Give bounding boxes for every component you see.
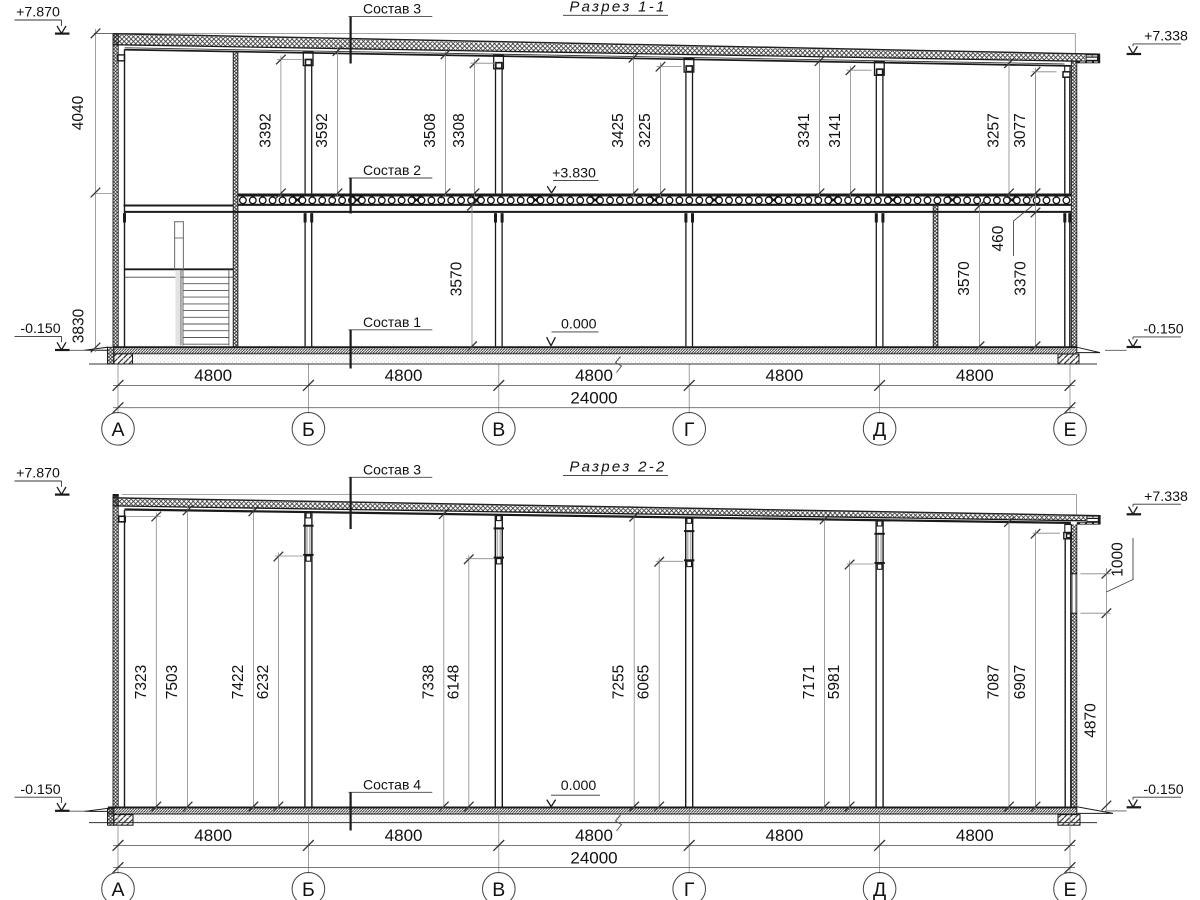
svg-text:+7.870: +7.870 bbox=[16, 5, 60, 21]
svg-text:Б: Б bbox=[302, 879, 315, 900]
svg-text:7087: 7087 bbox=[986, 665, 1003, 699]
svg-text:Г: Г bbox=[684, 879, 695, 900]
svg-text:Б: Б bbox=[302, 419, 315, 441]
svg-text:В: В bbox=[492, 879, 505, 900]
svg-text:4870: 4870 bbox=[1083, 703, 1100, 738]
svg-text:3341: 3341 bbox=[796, 113, 813, 147]
svg-text:7323: 7323 bbox=[133, 665, 150, 699]
svg-text:Состав 1: Состав 1 bbox=[363, 314, 421, 330]
svg-text:Д: Д bbox=[873, 419, 886, 441]
svg-text:Разрез 1-1: Разрез 1-1 bbox=[569, 0, 666, 15]
svg-text:-0.150: -0.150 bbox=[20, 321, 60, 337]
svg-text:Е: Е bbox=[1063, 419, 1076, 441]
svg-text:3141: 3141 bbox=[827, 113, 844, 147]
svg-text:7255: 7255 bbox=[611, 665, 628, 699]
svg-text:Состав 2: Состав 2 bbox=[363, 162, 421, 178]
svg-text:3570: 3570 bbox=[449, 261, 466, 296]
svg-text:3308: 3308 bbox=[451, 113, 468, 147]
svg-text:0.000: 0.000 bbox=[561, 778, 597, 794]
svg-text:Состав 4: Состав 4 bbox=[363, 776, 421, 792]
svg-text:А: А bbox=[111, 879, 124, 900]
svg-text:-0.150: -0.150 bbox=[20, 782, 60, 798]
svg-text:6148: 6148 bbox=[445, 665, 462, 699]
svg-text:+7.870: +7.870 bbox=[16, 466, 60, 482]
svg-text:Г: Г bbox=[684, 419, 695, 441]
svg-text:3425: 3425 bbox=[610, 113, 627, 147]
svg-text:Состав 3: Состав 3 bbox=[363, 461, 421, 477]
svg-text:Е: Е bbox=[1063, 879, 1076, 900]
svg-text:7422: 7422 bbox=[230, 665, 247, 699]
svg-text:7171: 7171 bbox=[801, 665, 818, 699]
svg-text:4800: 4800 bbox=[956, 826, 994, 845]
svg-text:3077: 3077 bbox=[1012, 113, 1029, 147]
svg-text:4800: 4800 bbox=[194, 366, 232, 385]
svg-text:А: А bbox=[111, 419, 124, 441]
svg-text:4800: 4800 bbox=[385, 826, 423, 845]
svg-text:-0.150: -0.150 bbox=[1143, 322, 1183, 338]
svg-text:460: 460 bbox=[990, 225, 1007, 251]
svg-text:3257: 3257 bbox=[986, 113, 1003, 147]
svg-text:+7.338: +7.338 bbox=[1144, 489, 1188, 505]
svg-text:+7.338: +7.338 bbox=[1144, 29, 1188, 45]
svg-text:3370: 3370 bbox=[1013, 261, 1030, 296]
svg-text:5981: 5981 bbox=[826, 665, 843, 699]
svg-text:1000: 1000 bbox=[1109, 542, 1126, 577]
svg-text:24000: 24000 bbox=[570, 389, 617, 408]
svg-text:4800: 4800 bbox=[956, 366, 994, 385]
svg-text:Д: Д bbox=[873, 879, 886, 900]
svg-text:3592: 3592 bbox=[314, 113, 331, 147]
svg-text:3830: 3830 bbox=[71, 308, 88, 343]
svg-text:Разрез 2-2: Разрез 2-2 bbox=[569, 458, 666, 475]
svg-text:0.000: 0.000 bbox=[561, 317, 597, 333]
svg-text:6065: 6065 bbox=[636, 665, 653, 699]
svg-text:4800: 4800 bbox=[765, 366, 803, 385]
svg-text:6232: 6232 bbox=[255, 665, 272, 699]
svg-text:В: В bbox=[492, 419, 505, 441]
svg-text:3225: 3225 bbox=[637, 113, 654, 147]
svg-text:+3.830: +3.830 bbox=[552, 165, 596, 181]
svg-text:-0.150: -0.150 bbox=[1143, 782, 1183, 798]
svg-text:4040: 4040 bbox=[70, 95, 87, 130]
svg-text:3508: 3508 bbox=[422, 113, 439, 147]
svg-text:4800: 4800 bbox=[575, 366, 613, 385]
svg-text:3570: 3570 bbox=[956, 261, 973, 296]
svg-text:4800: 4800 bbox=[575, 826, 613, 845]
svg-text:4800: 4800 bbox=[765, 826, 803, 845]
svg-text:6907: 6907 bbox=[1012, 665, 1029, 699]
svg-text:4800: 4800 bbox=[385, 366, 423, 385]
svg-text:4800: 4800 bbox=[194, 826, 232, 845]
svg-text:Состав 3: Состав 3 bbox=[363, 1, 421, 17]
svg-text:7338: 7338 bbox=[420, 665, 437, 699]
svg-text:7503: 7503 bbox=[164, 665, 181, 699]
svg-text:24000: 24000 bbox=[570, 849, 617, 868]
svg-text:3392: 3392 bbox=[258, 113, 275, 147]
